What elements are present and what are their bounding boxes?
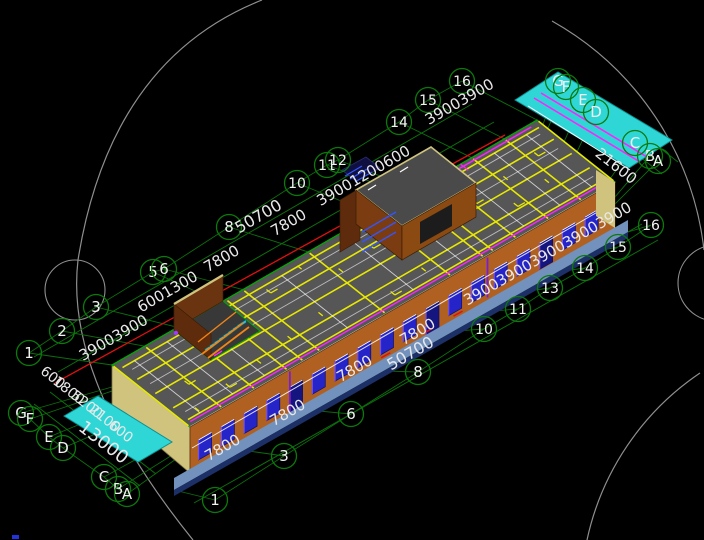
corner-blue-mark <box>12 535 19 539</box>
grid-bubble-label-16: 16 <box>642 218 660 234</box>
grid-bubble-label-8: 8 <box>413 363 423 381</box>
grid-bubble-label-E: E <box>44 428 53 446</box>
grid-bubble-label-6: 6 <box>346 405 356 423</box>
grid-bubble-label-C: C <box>99 468 109 486</box>
grid-bubble-label-D: D <box>590 103 602 121</box>
grid-bubble-label-A: A <box>653 152 664 170</box>
grid-bubble-label-C: C <box>630 134 640 152</box>
grid-bubble-label-12: 12 <box>329 153 347 169</box>
grid-bubble-label-15: 15 <box>609 240 627 256</box>
purple-node <box>174 331 178 335</box>
grid-bubble-label-F: F <box>26 410 35 428</box>
grid-bubble-label-14: 14 <box>390 115 408 131</box>
grid-bubble-label-A: A <box>122 485 133 503</box>
grid-bubble-label-D: D <box>57 439 69 457</box>
grid-bubble-label-2: 2 <box>57 322 67 340</box>
grid-bubble-label-3: 3 <box>279 447 289 465</box>
grid-bubble-label-13: 13 <box>541 281 559 297</box>
grid-bubble-label-10: 10 <box>475 322 493 338</box>
grid-bubble-label-3: 3 <box>91 298 101 316</box>
cad-drawing-canvas[interactable]: 1235681011121415161368101113141516GFEDCB… <box>0 0 704 540</box>
cad-3d-viewport[interactable]: 1235681011121415161368101113141516GFEDCB… <box>0 0 704 540</box>
grid-bubble-label-1: 1 <box>210 491 220 509</box>
grid-bubble-label-E: E <box>578 91 587 109</box>
grid-bubble-label-10: 10 <box>288 176 306 192</box>
grid-bubble-label-11: 11 <box>509 302 527 318</box>
grid-bubble-label-1: 1 <box>24 344 34 362</box>
grid-bubble-label-F: F <box>562 78 571 96</box>
grid-bubble-label-6: 6 <box>159 260 169 278</box>
grid-bubble-label-14: 14 <box>576 261 594 277</box>
